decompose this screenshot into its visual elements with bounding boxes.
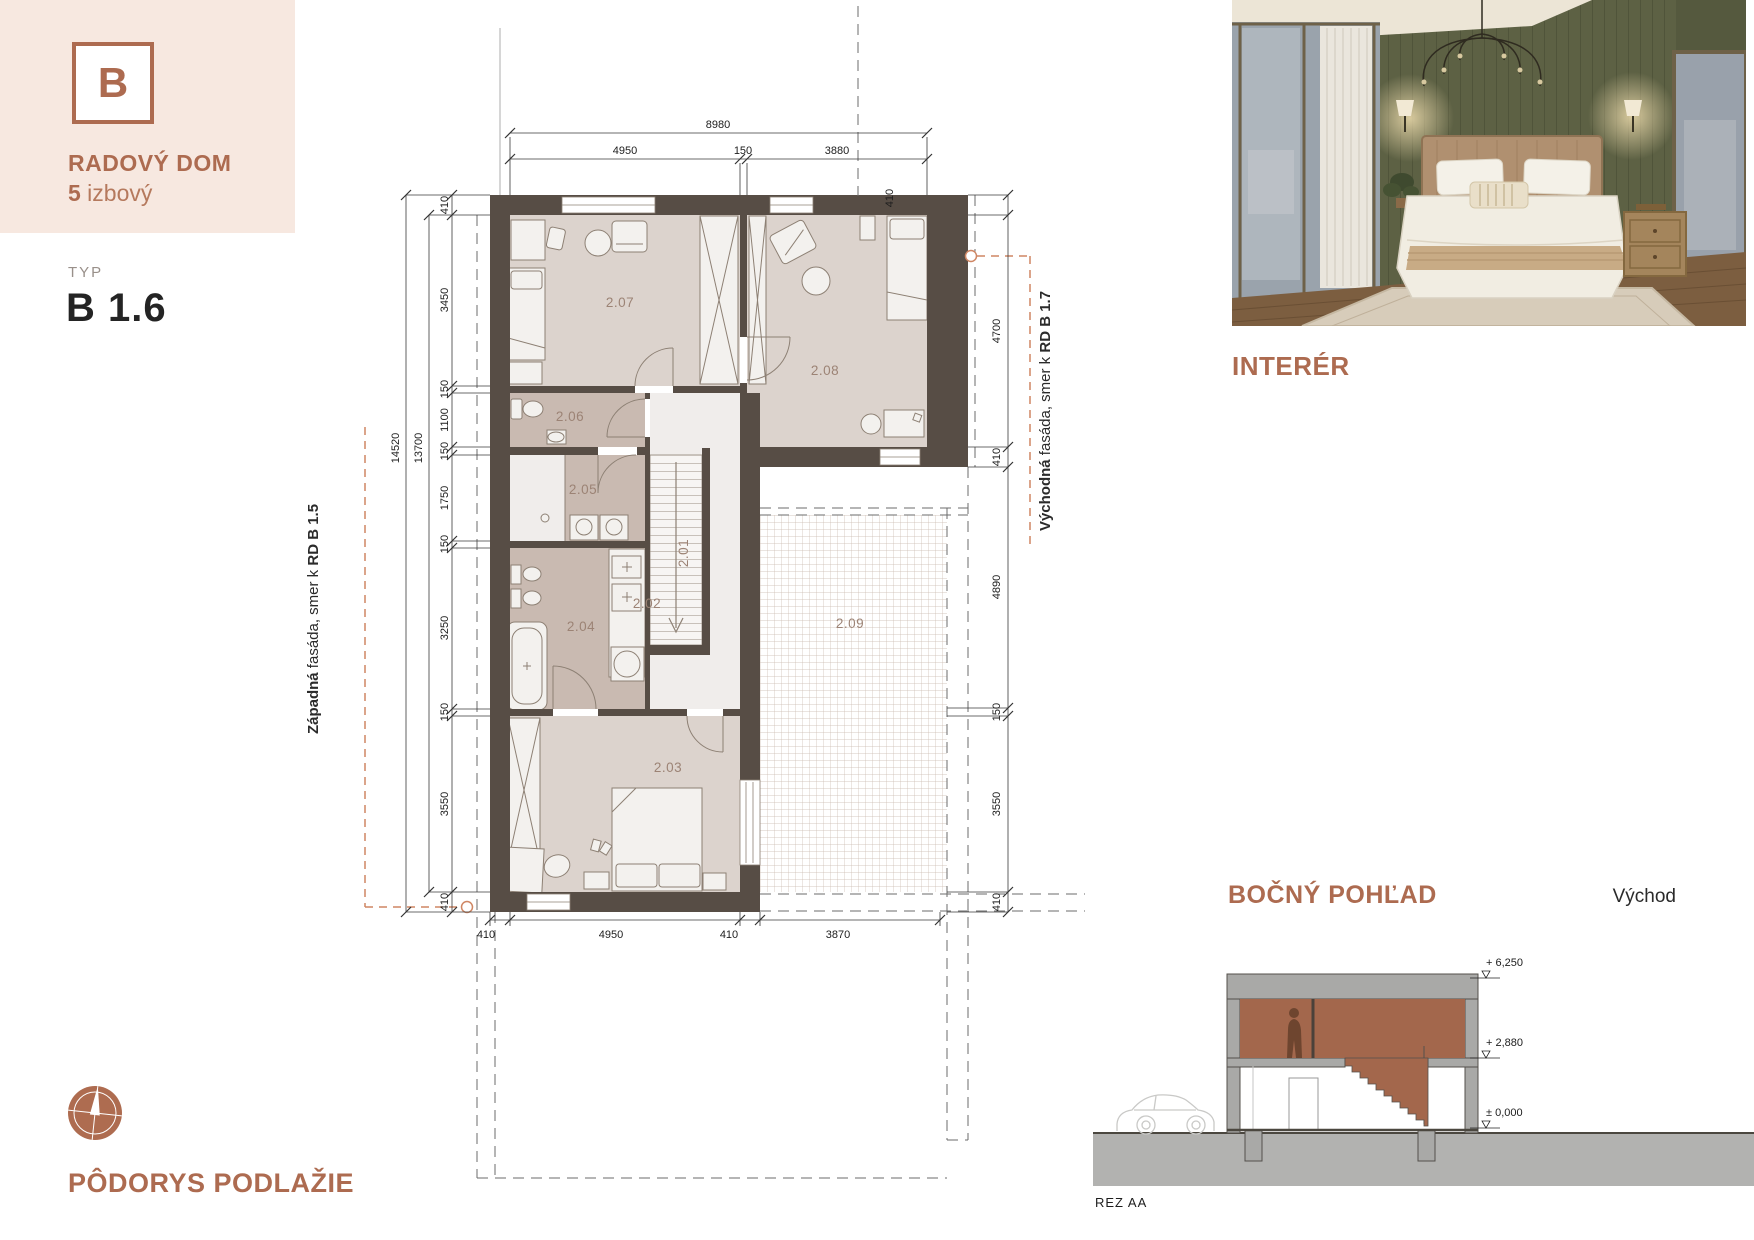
room-208-label: 2.08 — [811, 363, 839, 378]
room-203-label: 2.03 — [654, 760, 682, 775]
room-206-label: 2.06 — [556, 409, 584, 424]
dim-label: 150 — [439, 442, 451, 460]
dim-label: 410 — [991, 893, 1003, 911]
section-stairs — [1345, 1058, 1428, 1126]
drawing-sheet: 2.01 2.02 2.03 2.04 2.05 2.06 2.07 2.08 … — [0, 0, 1754, 1240]
dim-label: 1100 — [439, 408, 451, 432]
dim-label: 410 — [439, 196, 451, 214]
dim-label: 4890 — [991, 575, 1003, 599]
compass-icon — [65, 1083, 124, 1142]
level-label: ± 0,000 — [1486, 1107, 1523, 1119]
dim-label: 3450 — [439, 288, 451, 312]
dim-label: 4700 — [991, 319, 1003, 343]
dim-label: 410 — [884, 189, 896, 207]
dim-label: 150 — [439, 380, 451, 398]
dim-label: 150 — [991, 703, 1003, 721]
dim-label: 410 — [720, 929, 738, 941]
dim-label: 13700 — [413, 433, 425, 464]
dim-label: 3550 — [991, 792, 1003, 816]
side-section: + 6,250 + 2,880 ± 0,000 REZ AA — [1093, 957, 1754, 1210]
dim-label: 150 — [439, 703, 451, 721]
dim-label: 150 — [439, 535, 451, 553]
room-207-label: 2.07 — [606, 295, 634, 310]
room-202-label: 2.02 — [633, 596, 661, 611]
facade-marker-west — [462, 902, 473, 913]
dim-label: 410 — [439, 893, 451, 911]
dim-label: 3880 — [825, 145, 849, 157]
room-201-label: 2.01 — [676, 539, 691, 567]
dim-label: 4950 — [613, 145, 637, 157]
west-facade-note: Západná fasáda, smer k RD B 1.5 — [305, 504, 322, 734]
car-outline — [1117, 1095, 1214, 1134]
dim-label: 1750 — [439, 486, 451, 510]
upper-floor-fill — [1240, 999, 1465, 1058]
dim-label: 410 — [991, 448, 1003, 466]
terrace-tiles — [760, 515, 947, 892]
dim-label: 3250 — [439, 616, 451, 640]
room-204-label: 2.04 — [567, 619, 595, 634]
room-205-label: 2.05 — [569, 482, 597, 497]
level-label: + 6,250 — [1486, 957, 1523, 969]
dim-label: 410 — [477, 929, 495, 941]
facade-marker-east — [966, 251, 977, 262]
section-caption: REZ AA — [1095, 1195, 1147, 1210]
east-facade-note: Východná fasáda, smer k RD B 1.7 — [1037, 291, 1054, 531]
dim-label: 150 — [734, 145, 752, 157]
dim-label: 4950 — [599, 929, 623, 941]
dim-label: 3550 — [439, 792, 451, 816]
room-209-label: 2.09 — [836, 616, 864, 631]
level-label: + 2,880 — [1486, 1037, 1523, 1049]
dim-label: 3870 — [826, 929, 850, 941]
dim-label: 14520 — [390, 433, 402, 464]
floor-plan: 2.01 2.02 2.03 2.04 2.05 2.06 2.07 2.08 … — [305, 6, 1085, 1178]
dim-label: 8980 — [706, 119, 730, 131]
